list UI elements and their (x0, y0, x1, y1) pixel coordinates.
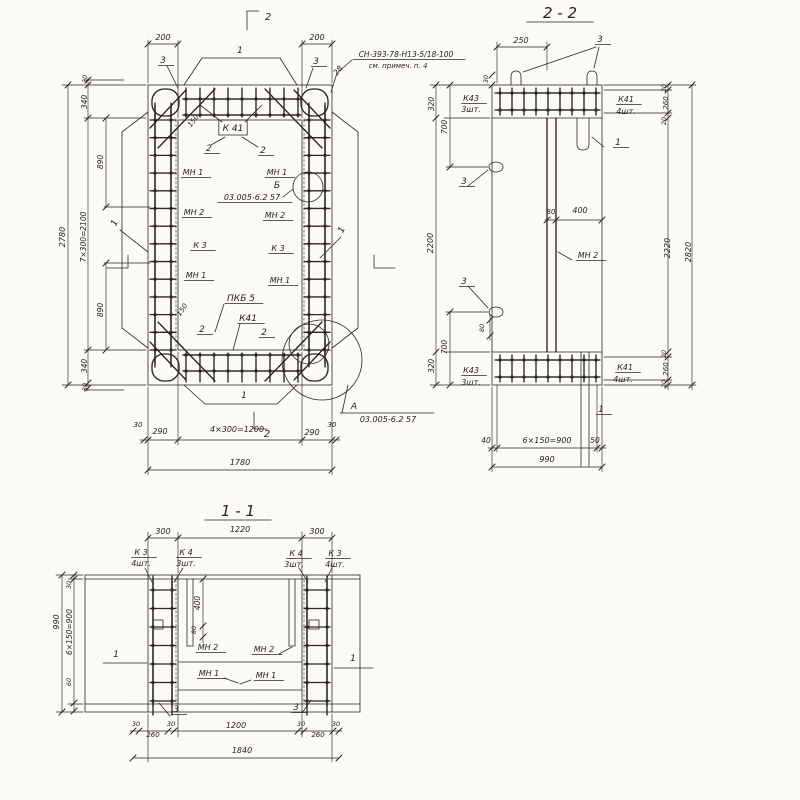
dim-20-tr-a: 20 (660, 84, 668, 92)
pos-label-K41-top: К 41 (223, 124, 244, 134)
weld-dot (499, 92, 502, 95)
weld-dot (571, 376, 574, 379)
pos-label-PKB5: ПКБ 5 (227, 294, 255, 304)
leader-3-s11-left: 3 (173, 705, 179, 715)
weld-dot (269, 98, 272, 101)
dim-80-s22-left: 80 (478, 324, 486, 332)
pos-K3-left-qty: 4шт. (131, 559, 151, 568)
weld-dot (306, 644, 309, 647)
weld-dot (283, 98, 286, 101)
bar-label-1-s22-top: 1 (615, 138, 621, 148)
drawing-line (320, 237, 341, 258)
weld-dot (152, 681, 155, 684)
section-mark-2-bottom: 2 (264, 429, 270, 440)
dim-300-right: 300 (309, 527, 324, 536)
pos-MN2-s22: МН 2 (578, 251, 599, 260)
weld-dot (326, 589, 329, 592)
weld-dot (583, 109, 586, 112)
weld-dot (523, 92, 526, 95)
drawing-line (558, 252, 572, 260)
weld-dot (559, 92, 562, 95)
section-mark-2-top: 2 (265, 12, 271, 23)
pos-label-MN1-b: МН 1 (267, 168, 288, 177)
pos-K43-bottom-qty: 3шт. (461, 378, 481, 387)
weld-dot (308, 278, 311, 281)
dim-2820: 2820 (684, 242, 693, 262)
weld-dot (535, 109, 538, 112)
weld-dot (326, 700, 329, 703)
bar-label-1-s22-bottom: 1 (598, 405, 604, 415)
weld-dot (170, 225, 173, 228)
weld-dot (326, 663, 329, 666)
dim-30-br: 30 (328, 421, 337, 429)
weld-dot (306, 607, 309, 610)
dim-250: 250 (513, 36, 528, 45)
weld-dot (583, 359, 586, 362)
weld-dot (152, 589, 155, 592)
dim-700-top: 700 (440, 120, 449, 135)
dim-7x300: 7×300=2100 (79, 211, 88, 262)
dim-30-s11-d: 30 (332, 720, 340, 728)
drawing-line (240, 680, 251, 684)
weld-dot (241, 370, 244, 373)
drawing-line (184, 58, 202, 85)
pos-label-MN1-d: МН 1 (270, 276, 291, 285)
dim-260-tr: 260 (662, 96, 670, 110)
pos-K4-right: К 4 (289, 549, 302, 558)
weld-dot (511, 376, 514, 379)
weld-dot (308, 225, 311, 228)
weld-dot (326, 681, 329, 684)
weld-dot (255, 98, 258, 101)
bar-hook (489, 162, 503, 172)
weld-dot (306, 626, 309, 629)
weld-dot (283, 354, 286, 357)
weld-dot (308, 119, 311, 122)
weld-dot (308, 242, 311, 245)
bar-label-1-top: 1 (237, 46, 243, 56)
pos-K4-right-qty: 3шт. (284, 560, 304, 569)
leader-3-s22-left-a: 3 (461, 177, 467, 187)
dim-290-right: 290 (304, 428, 319, 437)
weld-dot (227, 370, 230, 373)
weld-dot (185, 370, 188, 373)
weld-dot (297, 370, 300, 373)
dim-200-left: 200 (155, 33, 170, 42)
leader-3-s22-top: 3 (597, 35, 603, 45)
weld-dot (154, 349, 157, 352)
weld-dot (171, 607, 174, 610)
plan-left-column-cage (150, 106, 176, 364)
section-1-1-view (85, 568, 373, 716)
pos-label-2-a: 2 (206, 144, 212, 154)
drawing-line (122, 328, 148, 348)
note-see: см. примеч. п. 4 (369, 62, 428, 70)
weld-dot (269, 114, 272, 117)
dim-890-bottom: 890 (96, 303, 105, 318)
weld-dot (324, 278, 327, 281)
weld-dot (297, 98, 300, 101)
dim-30-top-left: 30 (81, 75, 89, 83)
dim-2780: 2780 (58, 227, 67, 247)
pos-K41-s22-top-qty: 4шт. (616, 107, 636, 116)
weld-dot (199, 370, 202, 373)
drawing-line (279, 647, 292, 654)
weld-dot (535, 359, 538, 362)
dim-30-s11-c: 30 (297, 720, 305, 728)
technical-drawing-canvas: 20022003328СН-393-78-Н13-5/18-100см. при… (0, 0, 800, 800)
weld-dot (154, 119, 157, 122)
pos-K3-right-qty: 4шт. (325, 560, 345, 569)
pos-K43-top: К43 (463, 94, 479, 103)
leader-3-top-right: 3 (313, 57, 319, 67)
dim-260-s11-b: 260 (311, 731, 325, 739)
dim-300-left: 300 (155, 527, 170, 536)
detail-label-B: Б (274, 181, 280, 191)
dim-2220: 2220 (663, 238, 672, 258)
weld-dot (308, 136, 311, 139)
drawing-line (211, 137, 225, 145)
weld-dot (308, 260, 311, 263)
weld-dot (571, 109, 574, 112)
pos-K3-left: К 3 (134, 548, 147, 557)
weld-dot (523, 359, 526, 362)
weld-dot (154, 207, 157, 210)
leader-3-s11-right: 3 (293, 703, 299, 713)
pos-MN2-s11-b: МН 2 (254, 645, 275, 654)
dim-30-bottom-left: 30 (81, 383, 89, 391)
weld-dot (559, 376, 562, 379)
weld-dot (583, 376, 586, 379)
weld-dot (154, 154, 157, 157)
s22-bottom-band-cage (497, 355, 599, 382)
dim-340-bottom: 340 (80, 359, 89, 374)
drawing-line (200, 105, 222, 122)
weld-dot (535, 376, 538, 379)
weld-dot (326, 607, 329, 610)
weld-dot (523, 376, 526, 379)
pos-label-K41-bottom: К41 (239, 314, 257, 324)
weld-dot (511, 92, 514, 95)
weld-dot (170, 207, 173, 210)
weld-dot (324, 154, 327, 157)
pos-K4-left-qty: 3шт. (176, 559, 196, 568)
weld-dot (154, 136, 157, 139)
weld-dot (324, 260, 327, 263)
dim-290-left: 290 (152, 427, 167, 436)
weld-dot (283, 114, 286, 117)
dim-2200: 2200 (426, 233, 435, 253)
weld-dot (571, 359, 574, 362)
drawing-line (122, 112, 148, 132)
weld-dot (154, 172, 157, 175)
dim-1200: 1200 (226, 721, 246, 730)
weld-dot (595, 376, 598, 379)
detail-label-A: А (350, 402, 357, 412)
weld-dot (241, 354, 244, 357)
dim-320-bottom: 320 (427, 359, 436, 374)
dim-890-top: 890 (96, 155, 105, 170)
weld-dot (595, 92, 598, 95)
weld-dot (171, 626, 174, 629)
weld-dot (185, 114, 188, 117)
weld-dot (595, 359, 598, 362)
pos-label-K3-b: К 3 (271, 244, 284, 253)
weld-dot (170, 313, 173, 316)
drawing-line (215, 304, 224, 332)
weld-dot (308, 313, 311, 316)
weld-dot (269, 370, 272, 373)
dim-28: 28 (332, 64, 345, 77)
pos-K43-top-qty: 3шт. (461, 105, 481, 114)
dim-60-s11: 60 (65, 678, 73, 686)
weld-dot (547, 92, 550, 95)
dim-1780: 1780 (230, 458, 250, 467)
bar-hook (489, 307, 503, 317)
weld-dot (255, 354, 258, 357)
weld-dot (213, 114, 216, 117)
weld-dot (154, 296, 157, 299)
weld-dot (308, 154, 311, 157)
weld-dot (241, 114, 244, 117)
title-section-1-1: 1 - 1 (221, 502, 255, 520)
weld-dot (324, 225, 327, 228)
s11-right-rib-cage (304, 576, 330, 715)
weld-dot (170, 331, 173, 334)
drawing-line (184, 385, 205, 404)
weld-dot (152, 644, 155, 647)
weld-dot (308, 296, 311, 299)
dim-340-top: 340 (80, 95, 89, 110)
dim-30-s11-b: 30 (167, 720, 175, 728)
drawing-line (332, 328, 358, 348)
leader-3-s22-left-b: 3 (461, 277, 467, 287)
drawing-line (159, 703, 170, 716)
weld-dot (227, 354, 230, 357)
weld-dot (306, 589, 309, 592)
weld-dot (283, 370, 286, 373)
bar-label-1-s11-left: 1 (113, 650, 119, 660)
weld-dot (269, 354, 272, 357)
weld-dot (547, 109, 550, 112)
dim-30-s11: 30 (65, 581, 73, 589)
pos-label-2-d: 2 (261, 328, 267, 338)
weld-dot (152, 663, 155, 666)
weld-dot (297, 114, 300, 117)
dimension-lines-layer (56, 40, 696, 762)
dim-400-s11: 400 (193, 596, 202, 611)
leader-3-top-left: 3 (160, 56, 166, 66)
weld-dot (523, 109, 526, 112)
weld-dot (308, 172, 311, 175)
weld-dot (324, 189, 327, 192)
weld-dot (306, 700, 309, 703)
dim-20-br-b: 20 (660, 380, 668, 388)
weld-dot (324, 313, 327, 316)
weld-dot (511, 359, 514, 362)
pos-K41-s22-bottom-qty: 4шт. (613, 375, 633, 384)
dim-30-bl: 30 (134, 421, 143, 429)
weld-dot (213, 370, 216, 373)
weld-dot (571, 92, 574, 95)
dim-200-right: 200 (309, 33, 324, 42)
dim-30-s11-a: 30 (132, 720, 140, 728)
pos-K4-left: К 4 (179, 548, 192, 557)
dim-400-web: 400 (572, 206, 587, 215)
pos-MN1-s11-a: МН 1 (199, 669, 220, 678)
weld-dot (227, 114, 230, 117)
weld-dot (170, 278, 173, 281)
weld-dot (170, 119, 173, 122)
weld-dot (170, 349, 173, 352)
weld-dot (559, 109, 562, 112)
weld-dot (547, 359, 550, 362)
dim-260-br: 260 (662, 362, 670, 376)
dim-40-s22: 40 (481, 436, 491, 445)
scanned-drawing-sheet: 20022003328СН-393-78-Н13-5/18-100см. при… (0, 0, 800, 800)
s11-left-rib-cage (150, 576, 176, 715)
weld-dot (170, 260, 173, 263)
detail-ref-B: 03.005-6.2 57 (224, 193, 281, 202)
weld-dot (171, 700, 174, 703)
drawing-line (342, 385, 348, 413)
bar-label-1-s11-right: 1 (350, 654, 356, 664)
weld-dot (171, 663, 174, 666)
bar-label-1-bottom: 1 (241, 391, 247, 401)
weld-dot (171, 589, 174, 592)
weld-dot (306, 663, 309, 666)
weld-dot (324, 242, 327, 245)
weld-dot (171, 681, 174, 684)
weld-dot (308, 349, 311, 352)
plan-top-band-cage (183, 88, 301, 117)
drawing-line (332, 112, 358, 132)
drawing-line (468, 170, 488, 186)
weld-dot (241, 98, 244, 101)
detail-circle-B (293, 172, 323, 202)
weld-dot (308, 189, 311, 192)
bar-label-1-left: 1 (109, 218, 120, 227)
weld-dot (170, 154, 173, 157)
weld-dot (199, 354, 202, 357)
title-section-2-2: 2 - 2 (543, 4, 577, 22)
weld-dot (326, 644, 329, 647)
weld-dot (154, 313, 157, 316)
dim-990-s11: 990 (52, 614, 61, 629)
weld-dot (308, 331, 311, 334)
weld-dot (324, 296, 327, 299)
drawing-line (280, 58, 297, 85)
weld-dot (154, 225, 157, 228)
weld-dot (152, 700, 155, 703)
pos-K3-right: К 3 (328, 549, 341, 558)
bar-loop (577, 118, 589, 150)
weld-dot (255, 370, 258, 373)
pos-MN2-s11-a: МН 2 (198, 643, 219, 652)
weld-dot (185, 98, 188, 101)
dim-700-bottom: 700 (440, 340, 449, 355)
pos-label-MN2-b: МН 2 (265, 211, 286, 220)
drawing-line (468, 286, 488, 308)
weld-dot (199, 98, 202, 101)
weld-dot (324, 172, 327, 175)
drawing-line (594, 47, 599, 68)
weld-dot (213, 354, 216, 357)
weld-dot (152, 626, 155, 629)
weld-dot (199, 114, 202, 117)
weld-dot (499, 359, 502, 362)
section-1-1-outline (85, 575, 360, 712)
weld-dot (324, 119, 327, 122)
pos-label-K3-a: К 3 (193, 241, 206, 250)
weld-dot (324, 349, 327, 352)
pos-K41-s22-bottom: К41 (617, 363, 633, 372)
dim-260-s11-a: 260 (146, 731, 160, 739)
weld-dot (499, 376, 502, 379)
weld-dot (324, 207, 327, 210)
dim-50-s22: 50 (590, 436, 600, 445)
weld-dot (595, 109, 598, 112)
detail-ref-A: 03.005-6.2 57 (360, 415, 417, 424)
weld-dot (154, 189, 157, 192)
weld-dot (324, 331, 327, 334)
weld-dot (170, 296, 173, 299)
pos-label-2-b: 2 (260, 146, 266, 156)
dim-990: 990 (539, 455, 554, 464)
weld-dot (306, 681, 309, 684)
weld-dot (154, 260, 157, 263)
plan-view (107, 11, 434, 429)
dim-6x150-s11: 6×150=900 (65, 609, 74, 655)
dim-6x150-s22: 6×150=900 (522, 436, 571, 445)
stirrup-hook (587, 71, 597, 85)
weld-dot (511, 109, 514, 112)
weld-dot (297, 354, 300, 357)
weld-dot (170, 189, 173, 192)
s22-top-band-cage (497, 88, 599, 115)
pos-label-MN2-a: МН 2 (184, 208, 205, 217)
weld-dot (308, 207, 311, 210)
weld-dot (154, 242, 157, 245)
weld-dot (547, 376, 550, 379)
drawing-line (523, 47, 596, 72)
weld-dot (213, 98, 216, 101)
pos-K43-bottom: К43 (463, 366, 479, 375)
pos-label-MN1-c: МН 1 (186, 271, 207, 280)
dim-150-bottom: 150 (175, 302, 190, 318)
weld-dot (154, 278, 157, 281)
bar-label-1-right: 1 (336, 225, 347, 234)
weld-dot (255, 114, 258, 117)
drawing-line (277, 385, 297, 404)
reinforcement-bar (265, 89, 322, 148)
pos-K41-s22-top: К41 (618, 95, 634, 104)
plan-bottom-band-cage (183, 353, 301, 382)
pos-MN1-s11-b: МН 1 (256, 671, 277, 680)
dim-20-br-a: 20 (660, 350, 668, 358)
drawing-line (283, 189, 293, 197)
dim-1840: 1840 (232, 746, 252, 755)
weld-dot (152, 607, 155, 610)
weld-dot (583, 92, 586, 95)
weld-dot (185, 354, 188, 357)
note-ref: СН-393-78-Н13-5/18-100 (359, 50, 454, 59)
weld-dot (170, 242, 173, 245)
weld-dot (499, 109, 502, 112)
dim-4x300: 4×300=1200 (210, 425, 264, 434)
weld-dot (154, 331, 157, 334)
pos-label-MN1-a: МН 1 (183, 168, 204, 177)
